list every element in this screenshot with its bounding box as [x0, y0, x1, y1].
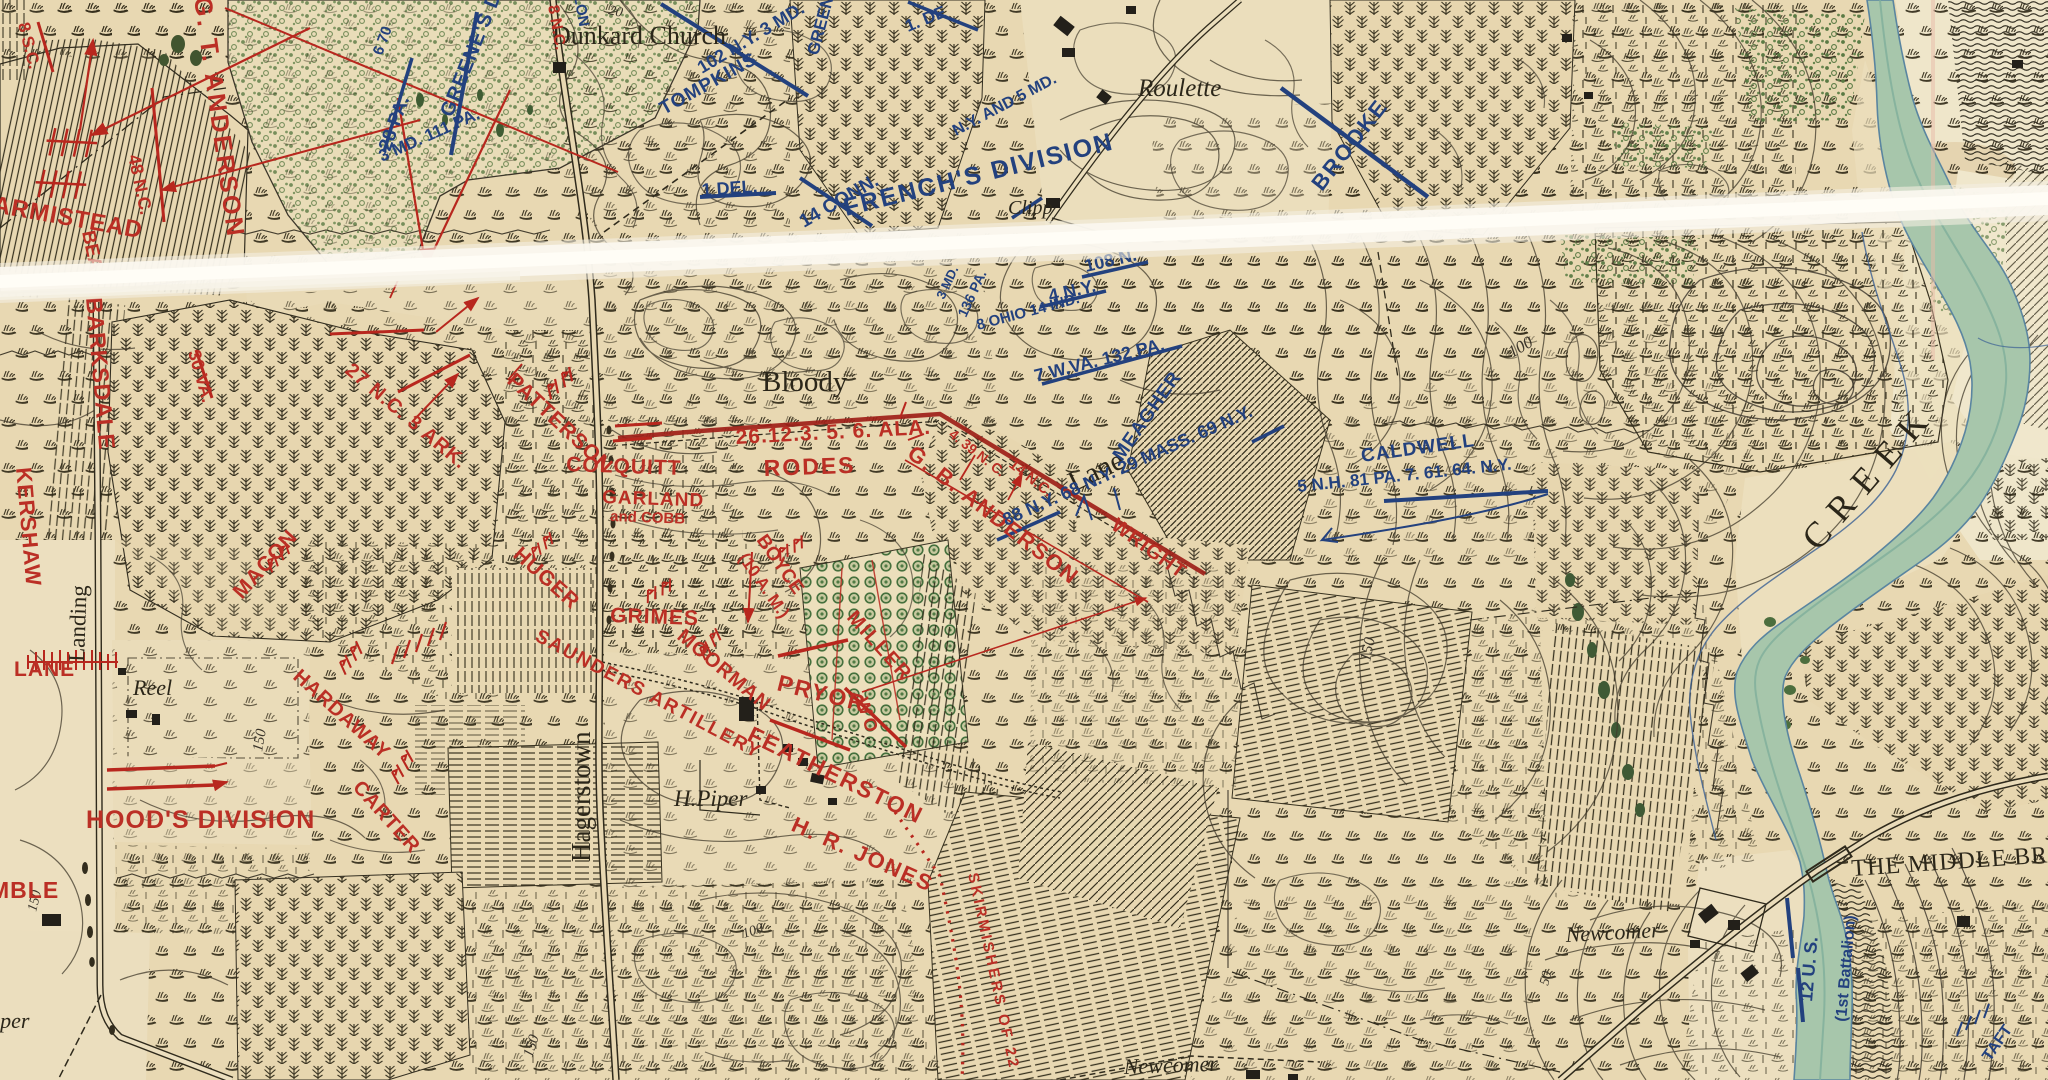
- svg-text:COLQUITT: COLQUITT: [566, 453, 682, 480]
- svg-text:iper: iper: [0, 1008, 30, 1033]
- svg-text:Roulette: Roulette: [1137, 75, 1221, 102]
- svg-text:MBLE: MBLE: [0, 877, 59, 903]
- svg-text:LANE: LANE: [14, 658, 75, 681]
- svg-text:HOOD'S DIVISION: HOOD'S DIVISION: [86, 806, 315, 834]
- svg-text:H.Piper: H.Piper: [673, 786, 749, 811]
- svg-text:Reel: Reel: [132, 675, 172, 700]
- svg-text:Clipp: Clipp: [1008, 197, 1052, 219]
- svg-text:Bloody: Bloody: [762, 366, 848, 398]
- svg-text:RODES: RODES: [763, 452, 856, 481]
- svg-text:Newcomer: Newcomer: [1122, 1051, 1218, 1079]
- svg-text:Newcomer: Newcomer: [1564, 917, 1661, 947]
- svg-text:1 DEL.: 1 DEL.: [701, 176, 758, 200]
- svg-text:Hagerstown: Hagerstown: [566, 731, 596, 862]
- svg-text:and COBB: and COBB: [610, 508, 686, 528]
- svg-text:Landing: Landing: [64, 584, 92, 662]
